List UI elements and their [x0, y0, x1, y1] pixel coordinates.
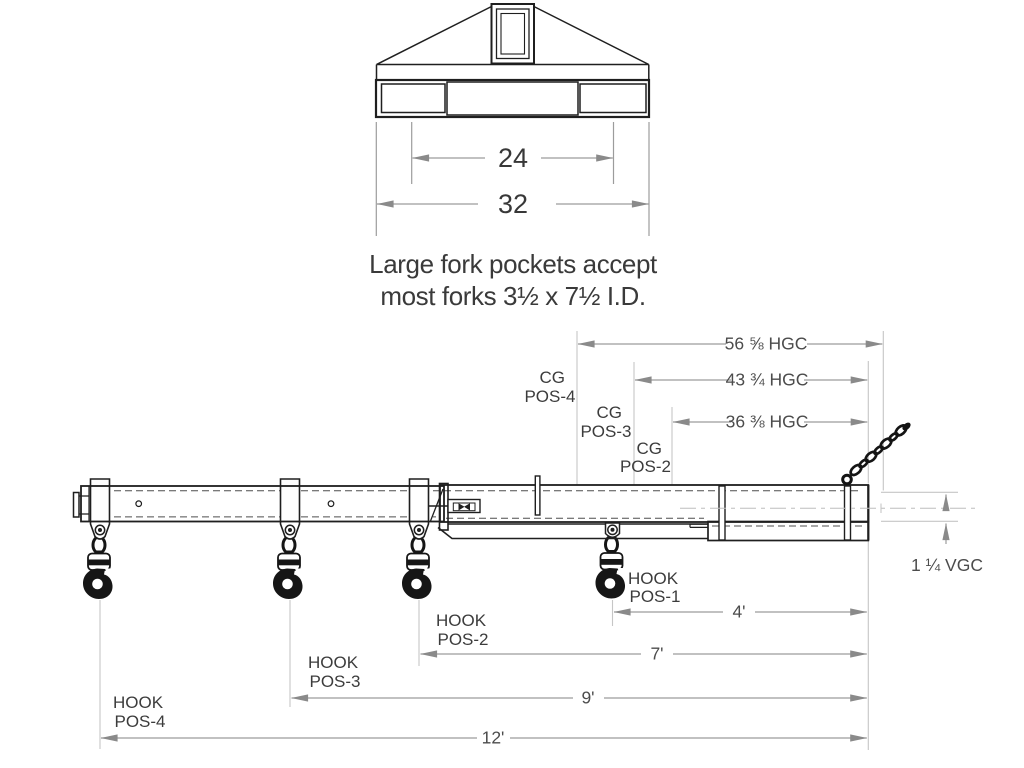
hook-pos1-distance: 4' — [732, 602, 745, 622]
swivel-hook-pos3 — [273, 537, 303, 599]
hook-pos2-label-line1: HOOK — [436, 611, 487, 630]
hanger-bracket-pos2 — [410, 479, 429, 539]
mouth-chamfer — [431, 489, 444, 521]
cg-pos3-label-line1: CG — [597, 403, 623, 422]
stop-pin — [535, 476, 540, 515]
pocket-spacing-value: 24 — [498, 143, 528, 173]
swivel-hook-pos4 — [83, 537, 113, 599]
safety-chain — [843, 421, 912, 484]
boom-side-view: 56 ⅝ HGC CG POS-4 43 ¾ HGC CG POS-3 36 ⅜… — [74, 331, 983, 750]
fork-pocket-cross-section: 24 32 Large fork pockets accept most for… — [369, 4, 658, 311]
hgc-pos3-value: 43 ¾ HGC — [726, 370, 809, 390]
hook-pos4-distance: 12' — [482, 728, 505, 748]
hook-pos4-label-line1: HOOK — [113, 693, 164, 712]
hook-pos2-distance: 7' — [650, 644, 663, 664]
hgc-pos2-value: 36 ⅜ HGC — [726, 412, 809, 432]
caption-line-2: most forks 3½ x 7½ I.D. — [380, 281, 645, 311]
vgc-value: 1 ¼ VGC — [911, 555, 983, 575]
channel-tab — [690, 524, 708, 527]
caption-line-1: Large fork pockets accept — [369, 249, 658, 279]
fork-boom-spec-diagram: 24 32 Large fork pockets accept most for… — [0, 0, 1024, 768]
hook-pos1-label-line1: HOOK — [628, 569, 679, 588]
right-fork-pocket — [580, 84, 646, 113]
left-fork-pocket — [382, 84, 446, 113]
hgc-dimensions: 56 ⅝ HGC CG POS-4 43 ¾ HGC CG POS-3 36 ⅜… — [524, 334, 882, 477]
dimension-hook-pos3: 9' HOOK POS-3 — [292, 653, 867, 708]
pin-hole-1 — [136, 501, 142, 507]
cg-pos3-label-line2: POS-3 — [580, 422, 631, 441]
dimension-pocket-spacing: 24 — [412, 122, 614, 184]
hook-pos3-label-line1: HOOK — [308, 653, 359, 672]
cg-pos4-label-line1: CG — [540, 368, 566, 387]
dimension-hgc-pos4: 56 ⅝ HGC CG POS-4 — [524, 334, 882, 407]
bottom-bar — [438, 524, 708, 539]
dimension-hook-pos2: 7' HOOK POS-2 — [421, 611, 867, 664]
hook-pos3-label-line2: POS-3 — [310, 672, 361, 691]
cg-pos2-label-line1: CG — [637, 439, 663, 458]
swivel-hook-pos1 — [596, 536, 626, 598]
stiffener-band-right — [845, 486, 851, 540]
hook-pos2-label-line2: POS-2 — [438, 630, 489, 649]
gusset-plates — [377, 7, 649, 81]
hook-dimensions: 4' HOOK POS-1 7' HOOK POS-2 9' HOOK POS-… — [101, 569, 867, 748]
hook-pos4-label-line2: POS-4 — [115, 712, 166, 731]
hook-pos3-distance: 9' — [581, 688, 594, 708]
dimension-hgc-pos3: 43 ¾ HGC CG POS-3 — [580, 370, 867, 442]
mast-tube — [492, 4, 535, 64]
spring-latch — [429, 500, 481, 513]
boom-structure — [74, 421, 913, 599]
cg-pos4-label-line2: POS-4 — [524, 387, 575, 406]
hook-pos1-label-line2: POS-1 — [630, 587, 681, 606]
stiffener-band-left — [719, 486, 725, 540]
hgc-pos4-value: 56 ⅝ HGC — [725, 334, 808, 354]
hanger-lug-pos1 — [606, 523, 620, 537]
center-boom-socket — [447, 82, 578, 115]
dimension-overall-width: 32 — [376, 122, 649, 236]
caption: Large fork pockets accept most forks 3½ … — [369, 249, 658, 311]
pin-hole-2 — [328, 501, 334, 507]
overall-width-value: 32 — [498, 189, 528, 219]
hanger-bracket-pos4 — [91, 479, 110, 539]
hanger-bracket-pos3 — [281, 479, 300, 539]
swivel-hook-pos2 — [402, 537, 432, 599]
cg-pos2-label-line2: POS-2 — [620, 457, 671, 476]
fork-pocket-bar — [376, 80, 649, 117]
dimension-hook-pos1: 4' HOOK POS-1 — [614, 569, 867, 622]
dimension-hook-pos4: 12' HOOK POS-4 — [101, 693, 867, 748]
dimension-hgc-pos2: 36 ⅜ HGC CG POS-2 — [620, 412, 867, 477]
diagram-svg: 24 32 Large fork pockets accept most for… — [0, 0, 1024, 768]
